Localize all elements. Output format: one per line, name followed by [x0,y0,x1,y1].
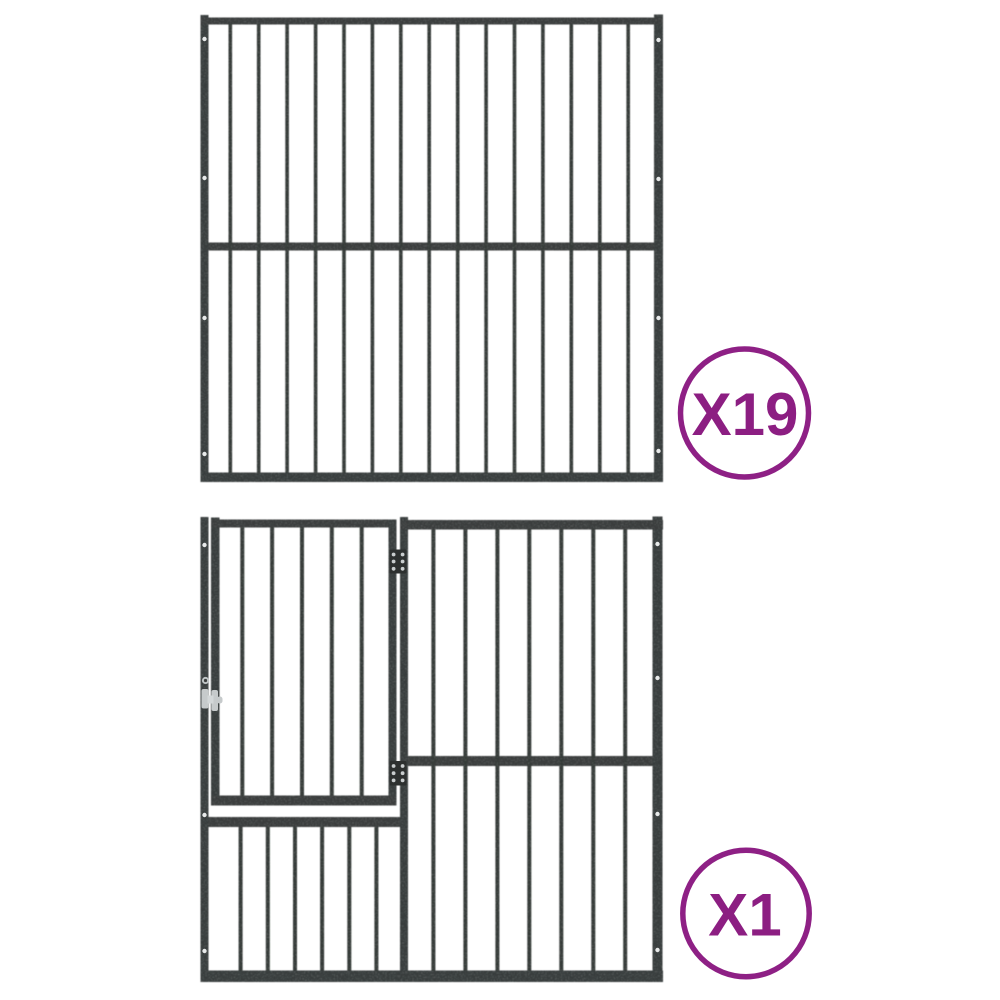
svg-text:X1: X1 [708,882,781,949]
svg-text:X19: X19 [692,381,799,448]
